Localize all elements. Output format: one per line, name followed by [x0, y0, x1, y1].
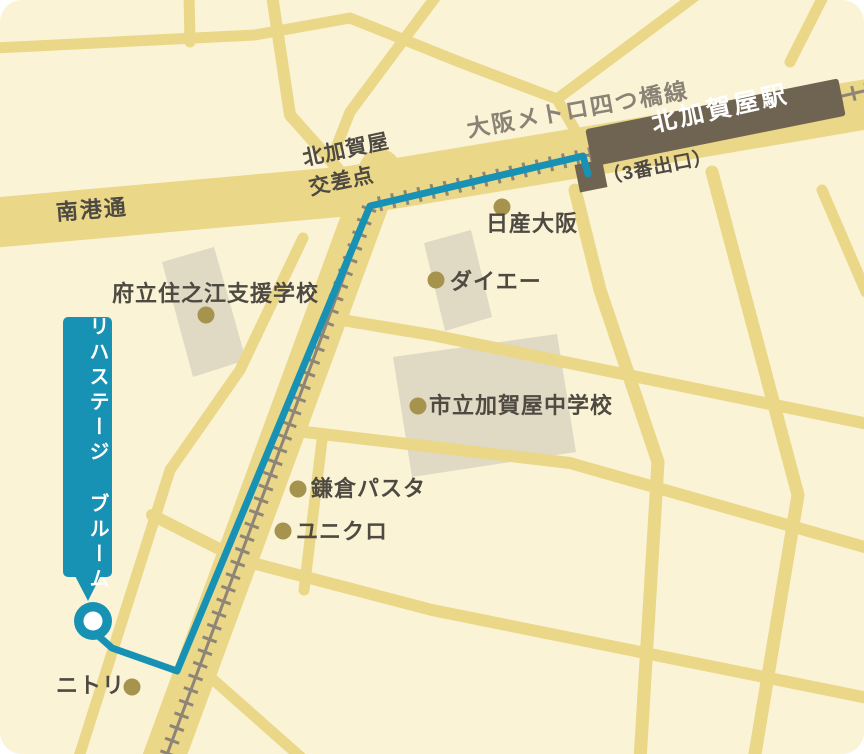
poi-label-daiei: ダイエー — [450, 269, 542, 294]
poi-label-uniqlo: ユニクロ — [296, 519, 388, 544]
poi-dot-support-school — [198, 307, 215, 324]
poi-label-support-school: 府立住之江支援学校 — [112, 281, 319, 306]
destination-marker — [74, 602, 112, 640]
poi-dot-daiei — [428, 272, 445, 289]
poi-label-nitori: ニトリ — [56, 673, 125, 698]
poi-label-nissan: 日産大阪 — [486, 211, 578, 236]
poi-dot-uniqlo — [275, 523, 292, 540]
poi-dot-nitori — [124, 679, 141, 696]
poi-label-junior-high: 市立加賀屋中学校 — [429, 393, 613, 418]
poi-dot-junior-high — [410, 398, 427, 415]
poi-dot-kamakura-pasta — [290, 481, 307, 498]
destination-callout: リハステージ ブルーム — [63, 317, 112, 577]
poi-label-kamakura-pasta: 鎌倉パスタ — [311, 476, 426, 501]
access-map: 大阪メトロ四つ橋線 北加賀屋駅 （3番出口） 北加賀屋 交差点 南港通 日産大阪… — [0, 0, 864, 754]
